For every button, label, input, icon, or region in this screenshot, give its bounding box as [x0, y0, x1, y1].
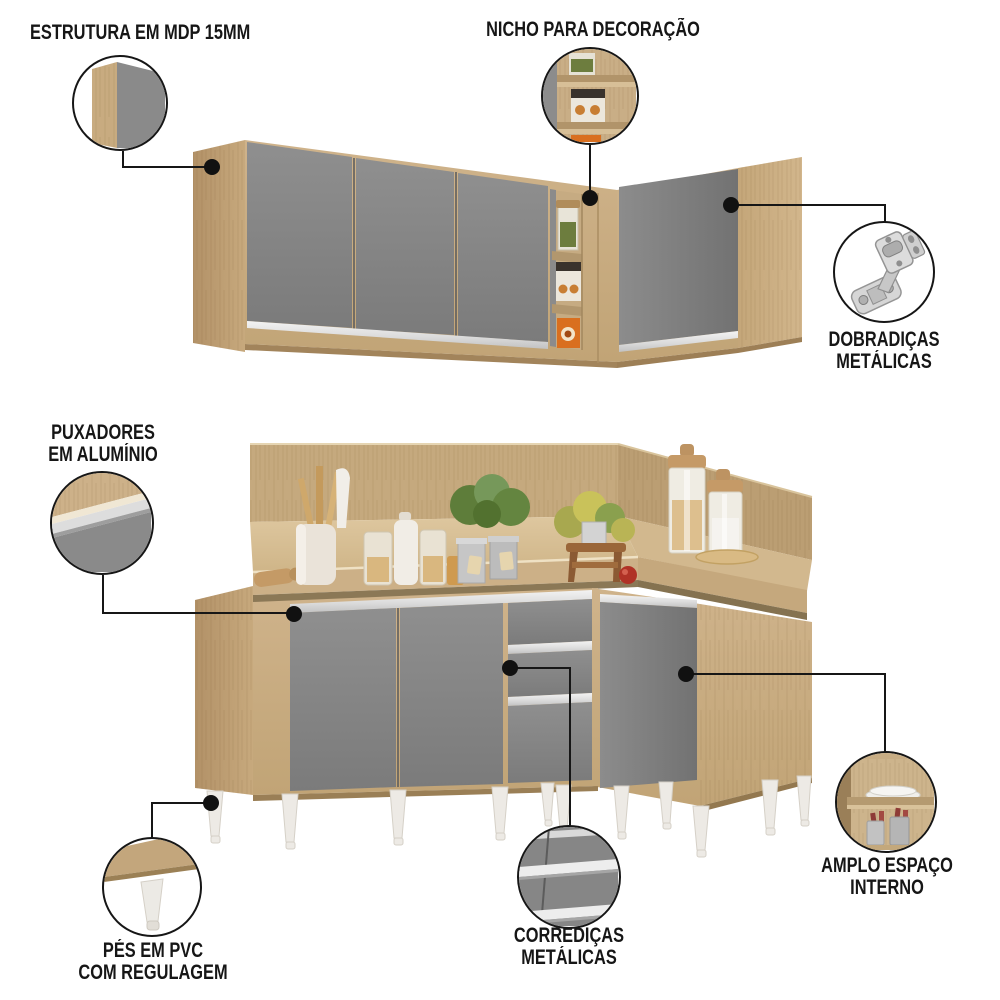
label-corredicas-line2: METÁLICAS — [452, 947, 686, 969]
connector-puxadores-v — [102, 575, 104, 613]
leg — [762, 780, 778, 835]
anchor-dot-estrutura — [204, 159, 220, 175]
label-nicho-text: NICHO PARA DECORAÇÃO — [476, 19, 710, 41]
upper-right-side-grain — [738, 157, 802, 348]
metal-hinge-icon — [833, 221, 935, 323]
upper-door-2 — [356, 158, 454, 335]
aluminum-handle-zoom-icon — [50, 471, 154, 575]
product-infographic: ESTRUTURA EM MDP 15MM NICHO PARA DECORAÇ… — [0, 0, 1000, 1000]
upper-cabinet — [193, 140, 802, 368]
niche-box-decor — [556, 262, 581, 301]
anchor-dot-pes — [203, 795, 219, 811]
upper-door-1 — [247, 142, 352, 328]
connector-puxadores-h — [102, 612, 294, 614]
drawer-1 — [508, 599, 592, 645]
leg — [390, 790, 406, 845]
lower-door-1 — [290, 608, 396, 791]
connector-estrutura-h — [122, 166, 213, 168]
leg — [693, 806, 709, 857]
label-estrutura-text: ESTRUTURA EM MDP 15MM — [30, 22, 250, 44]
label-nicho: NICHO PARA DECORAÇÃO — [443, 19, 743, 41]
label-pes-line2: COM REGULAGEM — [36, 962, 270, 984]
leg — [797, 776, 811, 826]
upper-right-door — [619, 169, 738, 345]
drawer-stack — [508, 599, 592, 783]
leg — [659, 782, 673, 829]
leg — [282, 794, 298, 849]
niche-jar-decor — [556, 200, 580, 250]
label-dobradicas: DOBRADIÇAS METÁLICAS — [734, 329, 1000, 372]
upper-door-3 — [458, 173, 548, 342]
pvc-leg-zoom-icon — [102, 837, 202, 937]
leg — [492, 787, 508, 840]
label-pes: PÉS EM PVC COM REGULAGEM — [3, 940, 303, 983]
drawer-slide-zoom-icon — [517, 825, 621, 929]
connector-corredicas-h — [510, 667, 571, 669]
connector-amplo-h — [686, 673, 886, 675]
leg — [614, 786, 629, 839]
label-dobradicas-line1: DOBRADIÇAS — [767, 329, 1000, 351]
interior-space-zoom-icon — [835, 751, 937, 853]
label-puxadores: PUXADORES EM ALUMÍNIO — [0, 422, 253, 465]
niche-zoom-icon — [541, 47, 639, 145]
label-dobradicas-line2: METÁLICAS — [767, 351, 1000, 373]
upper-left-side-grain — [193, 140, 245, 352]
lower-cabinet — [195, 444, 812, 857]
connector-dobradicas-h — [731, 204, 886, 206]
label-corredicas: CORREDIÇAS METÁLICAS — [419, 925, 719, 968]
anchor-dot-dobradicas — [723, 197, 739, 213]
label-puxadores-line1: PUXADORES — [0, 422, 220, 444]
lower-left-side-grain — [195, 586, 253, 795]
label-amplo-line2: INTERNO — [770, 877, 1000, 899]
label-pes-line1: PÉS EM PVC — [36, 940, 270, 962]
connector-estrutura-v — [122, 151, 124, 167]
anchor-dot-puxadores — [286, 606, 302, 622]
label-estrutura: ESTRUTURA EM MDP 15MM — [30, 22, 312, 44]
label-puxadores-line2: EM ALUMÍNIO — [0, 444, 220, 466]
anchor-dot-corredicas — [502, 660, 518, 676]
connector-amplo-v — [884, 673, 886, 753]
corner-structure-zoom-icon — [72, 55, 168, 151]
niche-orange-box-decor — [557, 318, 580, 348]
leg — [541, 783, 554, 826]
connector-corredicas-v — [569, 667, 571, 827]
anchor-dot-amplo — [678, 666, 694, 682]
drawer-3 — [508, 702, 592, 783]
label-amplo-line1: AMPLO ESPAÇO — [770, 855, 1000, 877]
label-corredicas-line1: CORREDIÇAS — [452, 925, 686, 947]
lower-right-door — [600, 602, 697, 788]
lower-right-frame-grain — [700, 604, 812, 806]
label-amplo: AMPLO ESPAÇO INTERNO — [737, 855, 1000, 898]
decor-tall-canister — [668, 444, 706, 553]
lower-door-2 — [400, 603, 503, 787]
anchor-dot-nicho — [582, 190, 598, 206]
niche-inner-shadow — [550, 189, 556, 347]
drawer-2 — [508, 650, 592, 697]
connector-pes-v — [151, 802, 153, 839]
